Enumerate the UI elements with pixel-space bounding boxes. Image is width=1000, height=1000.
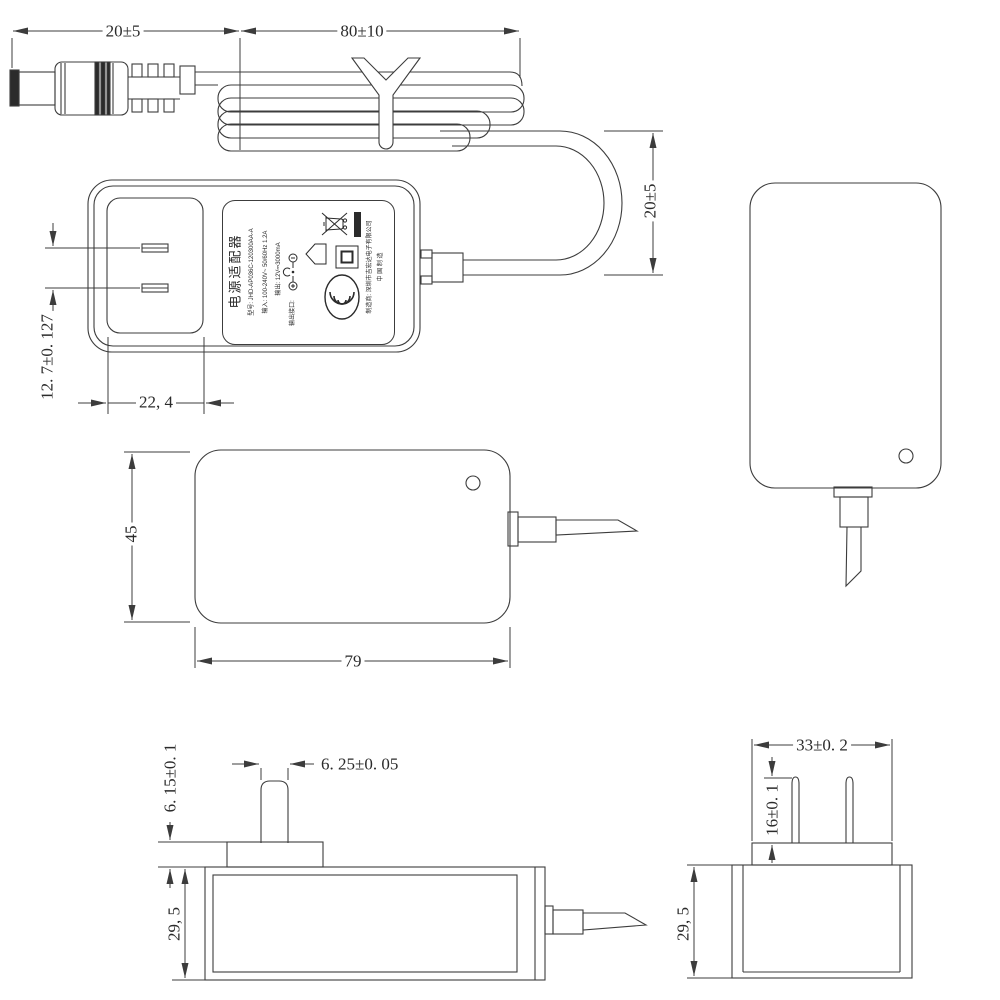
bottom-side-view xyxy=(205,781,646,980)
technical-drawing-page: { "style": { "background": "#ffffff", "l… xyxy=(0,0,1000,1000)
label-title: 电源适配器 xyxy=(229,233,242,308)
label-port: 输出接口: xyxy=(290,300,296,326)
side-strain-relief xyxy=(508,512,637,546)
indoor-use-icon xyxy=(306,244,326,264)
dim-text-face-height: 6. 15±0. 1 xyxy=(162,741,179,816)
plug-face-platform-front xyxy=(752,843,892,865)
dim-thickness-right xyxy=(687,865,732,978)
adapter-back-view xyxy=(750,183,941,586)
dim-blade-tip-width xyxy=(232,764,314,780)
drawing-canvas xyxy=(0,0,1000,1000)
dim-face-height xyxy=(158,822,227,888)
front-strain-relief xyxy=(421,250,463,284)
polarity-icon xyxy=(283,254,297,290)
dc-plug xyxy=(10,62,195,115)
label-input: 输入: 100-240V~ 50/60Hz 1.2A xyxy=(263,231,269,314)
dim-text-blade-pitch: 12. 7±0. 127 xyxy=(39,311,56,403)
weee-bar xyxy=(354,212,361,237)
class-ii-icon xyxy=(336,246,358,268)
ccc-mark-icon xyxy=(325,275,359,319)
dim-text-plug-length: 20±5 xyxy=(103,23,144,40)
dim-text-body-width: 45 xyxy=(123,523,140,546)
label-output: 输出: 12V⎓3000mA xyxy=(276,242,282,295)
plug-recess xyxy=(107,198,203,333)
plug-face-platform xyxy=(227,842,323,867)
plug-face-view xyxy=(732,777,912,978)
adapter-side-view xyxy=(195,450,637,623)
blade-profile xyxy=(261,781,288,843)
cable-end-back xyxy=(846,527,861,586)
blade-left xyxy=(792,777,799,843)
label-made-in: 中 国 制 造 xyxy=(378,252,384,281)
led-hole xyxy=(466,476,480,490)
dim-plug-length xyxy=(12,31,240,150)
dimension-lines xyxy=(12,31,892,980)
dim-text-blade-length: 16±0. 1 xyxy=(764,781,781,839)
dim-text-coil-length: 80±10 xyxy=(337,23,386,40)
dim-text-thickness-right: 29, 5 xyxy=(675,904,692,944)
cable-end xyxy=(556,520,637,535)
dim-text-body-length: 79 xyxy=(342,653,365,670)
weee-bin-icon xyxy=(322,213,347,235)
dim-blade-pitch xyxy=(45,223,140,313)
blade-right xyxy=(846,777,853,843)
dim-text-blade-tip-width: 6. 25±0. 05 xyxy=(318,756,401,773)
label-model: 型号: JHD-AP036C-120300AA-A xyxy=(249,228,255,315)
dim-text-face-width: 33±0. 2 xyxy=(793,737,851,754)
cable-end-bottom xyxy=(583,913,646,930)
dim-text-thickness-left: 29, 5 xyxy=(166,904,183,944)
product-label: 电源适配器 型号: JHD-AP036C-120300AA-A 输入: 100-… xyxy=(222,200,395,345)
dim-text-loop-height: 20±5 xyxy=(642,181,659,222)
led-hole-back xyxy=(899,449,913,463)
us-plug-blades xyxy=(142,244,168,292)
label-manufacturer: 制造商: 深圳市吉宏达电子有限公司 xyxy=(367,220,373,313)
cable-coil xyxy=(195,72,524,151)
dim-text-recess-width: 22, 4 xyxy=(136,394,176,411)
bottom-strain-relief xyxy=(545,906,646,934)
back-strain-relief xyxy=(834,487,872,586)
cable-loop xyxy=(440,131,622,275)
